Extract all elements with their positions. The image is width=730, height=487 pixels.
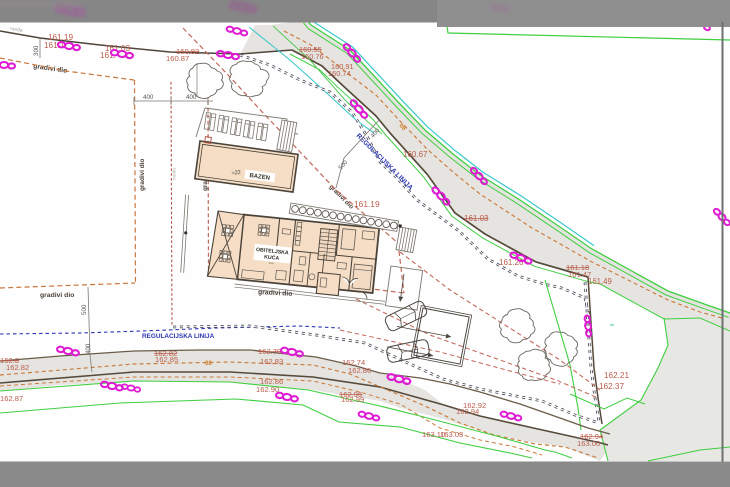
svg-text:gradivi dio: gradivi dio <box>139 159 146 191</box>
svg-text:161.03: 161.03 <box>464 214 489 223</box>
svg-text:162.21: 162.21 <box>604 371 629 380</box>
svg-text:400: 400 <box>85 343 92 354</box>
svg-text:500: 500 <box>81 304 88 315</box>
svg-text:162.86: 162.86 <box>348 366 371 375</box>
svg-text:međa: međa <box>172 168 178 180</box>
svg-text:163.00: 163.00 <box>577 439 600 448</box>
svg-text:162.37: 162.37 <box>599 382 624 391</box>
svg-text:162.99: 162.99 <box>341 395 364 404</box>
svg-text:163.03: 163.03 <box>440 430 463 439</box>
svg-text:REGULACIJSKA LINIJA: REGULACIJSKA LINIJA <box>142 333 215 340</box>
svg-text:gradivi dio: gradivi dio <box>40 292 74 299</box>
svg-text:162.85: 162.85 <box>155 355 178 364</box>
svg-text:162.83: 162.83 <box>260 357 283 366</box>
svg-text:162.79: 162.79 <box>258 347 281 356</box>
svg-text:08: 08 <box>205 361 212 367</box>
svg-text:160.67: 160.67 <box>403 150 428 159</box>
svg-text:400: 400 <box>143 94 154 101</box>
svg-text:160.76: 160.76 <box>301 52 324 61</box>
svg-text:160.74: 160.74 <box>328 69 351 78</box>
svg-text:161.49: 161.49 <box>588 277 612 286</box>
svg-text:300: 300 <box>33 45 40 56</box>
svg-text:162.87: 162.87 <box>0 394 23 403</box>
svg-text:162.90: 162.90 <box>256 385 279 394</box>
svg-text:161.19: 161.19 <box>354 199 380 209</box>
svg-text:161.26: 161.26 <box>499 258 524 267</box>
svg-text:162.94: 162.94 <box>456 407 479 416</box>
svg-text:≈22: ≈22 <box>231 170 241 177</box>
svg-text:160.87: 160.87 <box>166 54 189 63</box>
svg-text:162.82: 162.82 <box>6 363 29 372</box>
